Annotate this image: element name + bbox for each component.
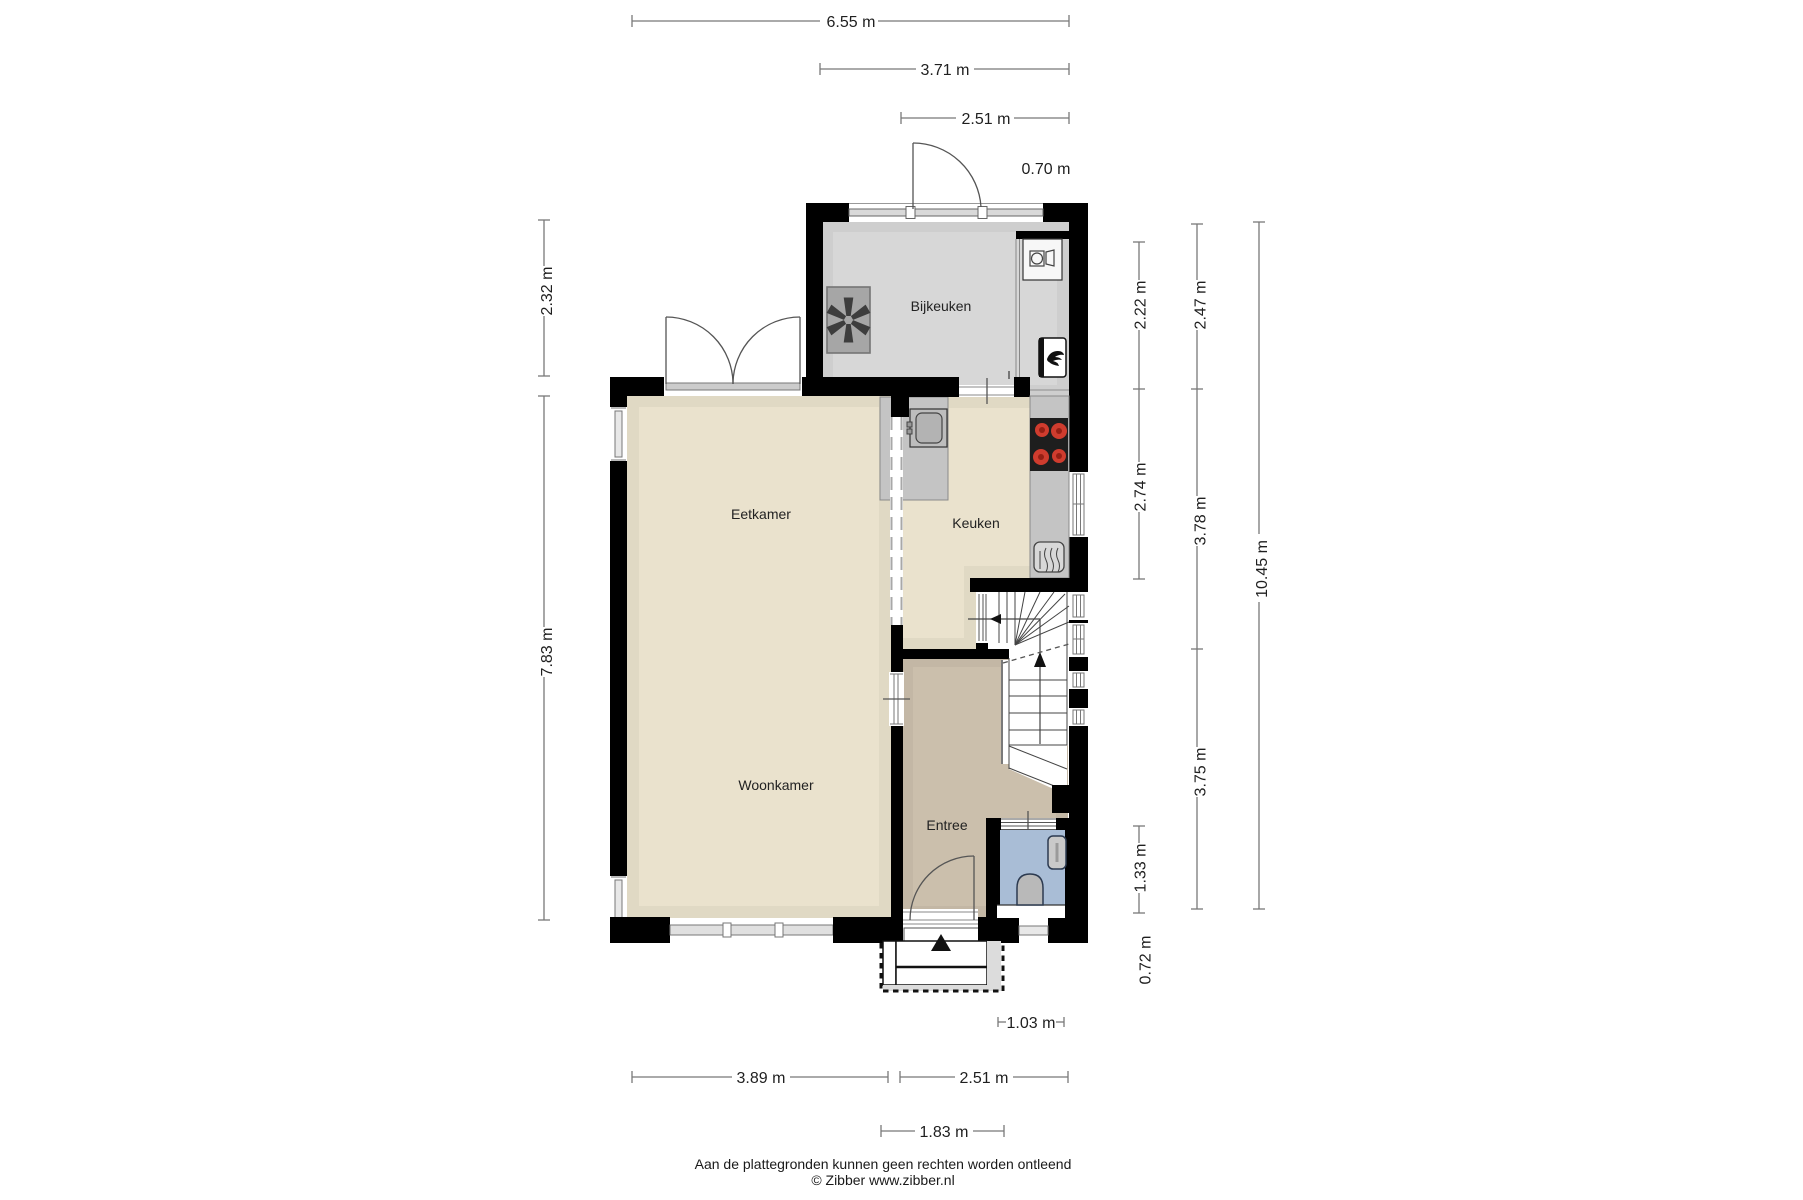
svg-text:0.72 m: 0.72 m: [1138, 936, 1155, 985]
svg-text:© Zibber www.zibber.nl: © Zibber www.zibber.nl: [811, 1172, 954, 1188]
svg-text:3.89 m: 3.89 m: [737, 1070, 786, 1087]
svg-text:3.71 m: 3.71 m: [921, 62, 970, 79]
svg-text:2.74 m: 2.74 m: [1133, 463, 1150, 512]
svg-text:3.78 m: 3.78 m: [1193, 497, 1210, 546]
svg-text:1.83 m: 1.83 m: [920, 1124, 969, 1141]
svg-text:Aan de plattegronden kunnen ge: Aan de plattegronden kunnen geen rechten…: [695, 1156, 1072, 1172]
svg-text:10.45 m: 10.45 m: [1254, 540, 1271, 598]
svg-text:Keuken: Keuken: [952, 515, 999, 531]
svg-text:1.33 m: 1.33 m: [1133, 844, 1150, 893]
svg-text:6.55 m: 6.55 m: [827, 14, 876, 31]
svg-text:Bijkeuken: Bijkeuken: [911, 298, 972, 314]
svg-text:7.83 m: 7.83 m: [539, 628, 556, 677]
svg-text:Eetkamer: Eetkamer: [731, 506, 791, 522]
svg-text:Woonkamer: Woonkamer: [738, 777, 814, 793]
svg-text:2.51 m: 2.51 m: [962, 111, 1011, 128]
svg-text:1.03 m: 1.03 m: [1007, 1015, 1056, 1032]
svg-text:0.70 m: 0.70 m: [1022, 161, 1071, 178]
svg-text:2.47 m: 2.47 m: [1193, 281, 1210, 330]
svg-text:3.75 m: 3.75 m: [1193, 748, 1210, 797]
svg-text:2.51 m: 2.51 m: [960, 1070, 1009, 1087]
svg-text:2.32 m: 2.32 m: [539, 267, 556, 316]
svg-text:2.22 m: 2.22 m: [1133, 281, 1150, 330]
svg-text:Entree: Entree: [926, 817, 967, 833]
